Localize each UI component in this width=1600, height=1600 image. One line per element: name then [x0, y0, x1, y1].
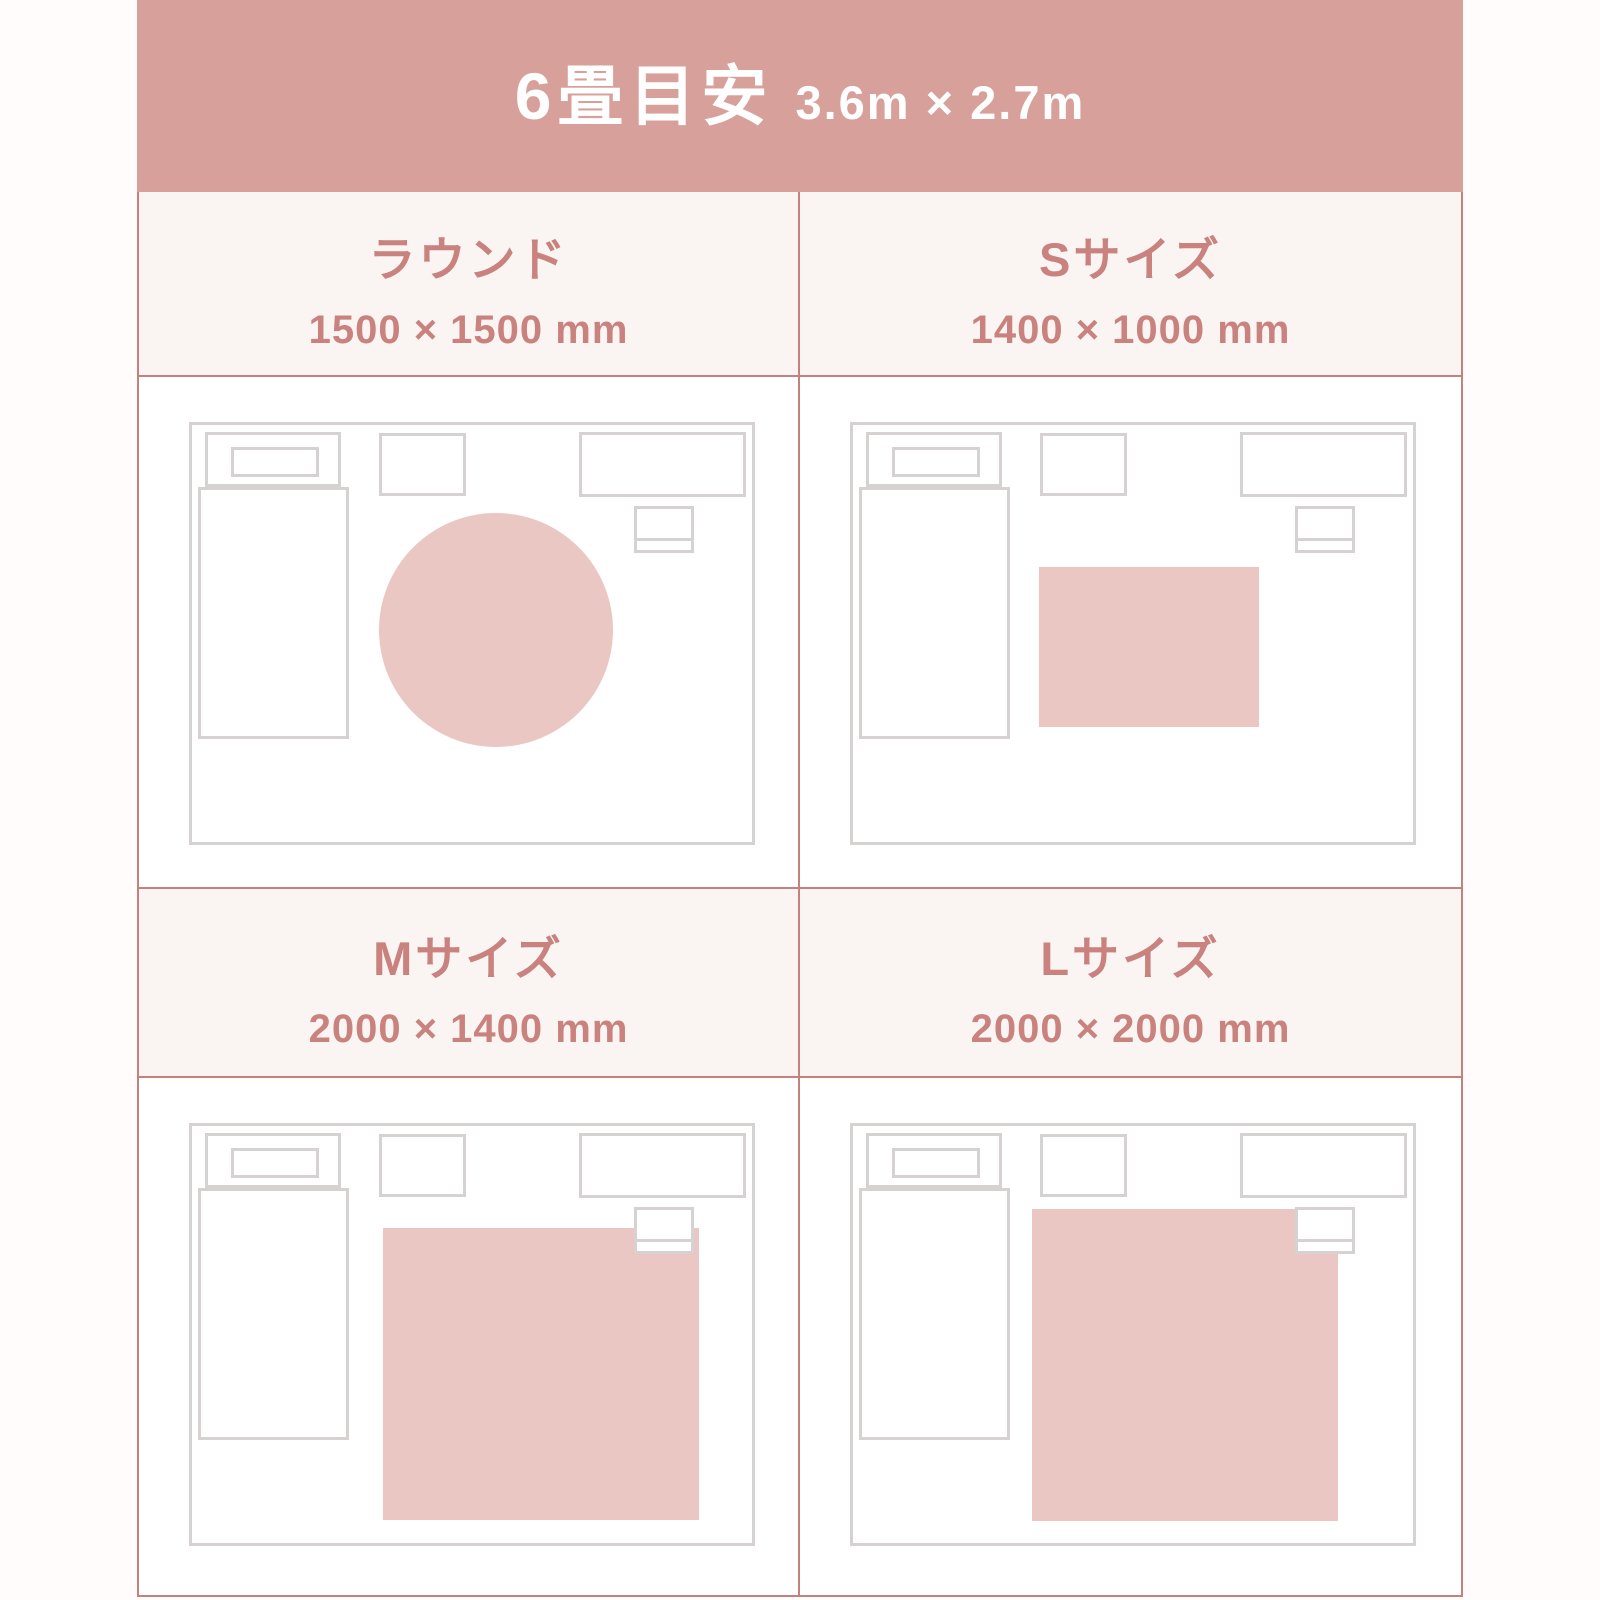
room-diagram-s	[800, 377, 1461, 889]
rug-s-size	[1039, 567, 1259, 727]
room-diagram-m	[139, 1078, 800, 1595]
chair-seat-line	[1297, 1239, 1353, 1242]
chair-seat-line	[1297, 538, 1353, 541]
bed	[859, 1188, 1010, 1440]
bed	[198, 1188, 349, 1440]
desk	[579, 1133, 746, 1198]
room-size-dimensions: 3.6m × 2.7m	[795, 75, 1085, 130]
dresser	[379, 433, 466, 496]
dresser	[1040, 433, 1127, 496]
size-dimensions-round: 1500 × 1500 mm	[309, 308, 629, 353]
size-dimensions-m: 2000 × 1400 mm	[309, 1007, 629, 1052]
size-name-l: Lサイズ	[1040, 920, 1220, 989]
bed	[859, 487, 1010, 739]
rug-l-size	[1032, 1209, 1338, 1521]
size-comparison-grid: ラウンド 1500 × 1500 mm Sサイズ 1400 × 1000 mm	[137, 192, 1463, 1597]
label-cell-s: Sサイズ 1400 × 1000 mm	[800, 192, 1461, 377]
desk	[1240, 432, 1407, 497]
chair-seat-line	[636, 1239, 692, 1242]
chair-seat-line	[636, 538, 692, 541]
infographic-content: 6畳目安 3.6m × 2.7m ラウンド 1500 × 1500 mm Sサイ…	[137, 0, 1463, 1597]
desk	[1240, 1133, 1407, 1198]
label-cell-round: ラウンド 1500 × 1500 mm	[139, 192, 800, 377]
label-cell-m: Mサイズ 2000 × 1400 mm	[139, 889, 800, 1078]
chair	[634, 1207, 694, 1254]
room-diagram-l	[800, 1078, 1461, 1595]
chair	[634, 506, 694, 553]
desk	[579, 432, 746, 497]
bed-pillow	[231, 1148, 319, 1178]
dresser	[1040, 1134, 1127, 1197]
bed-pillow	[231, 447, 319, 477]
chair	[1295, 506, 1355, 553]
header-band: 6畳目安 3.6m × 2.7m	[137, 0, 1463, 192]
dresser	[379, 1134, 466, 1197]
room-diagram-round	[139, 377, 800, 889]
size-name-s: Sサイズ	[1039, 221, 1222, 290]
label-cell-l: Lサイズ 2000 × 2000 mm	[800, 889, 1461, 1078]
rug-m-size	[383, 1228, 699, 1520]
rug-round	[379, 513, 613, 747]
chair	[1295, 1207, 1355, 1254]
room-size-title: 6畳目安	[515, 0, 774, 192]
size-name-round: ラウンド	[369, 221, 569, 290]
rug-size-infographic: 6畳目安 3.6m × 2.7m ラウンド 1500 × 1500 mm Sサイ…	[0, 0, 1600, 1600]
bed-pillow	[892, 447, 980, 477]
size-name-m: Mサイズ	[373, 920, 564, 989]
size-dimensions-l: 2000 × 2000 mm	[971, 1007, 1291, 1052]
bed-pillow	[892, 1148, 980, 1178]
bed	[198, 487, 349, 739]
size-dimensions-s: 1400 × 1000 mm	[971, 308, 1291, 353]
